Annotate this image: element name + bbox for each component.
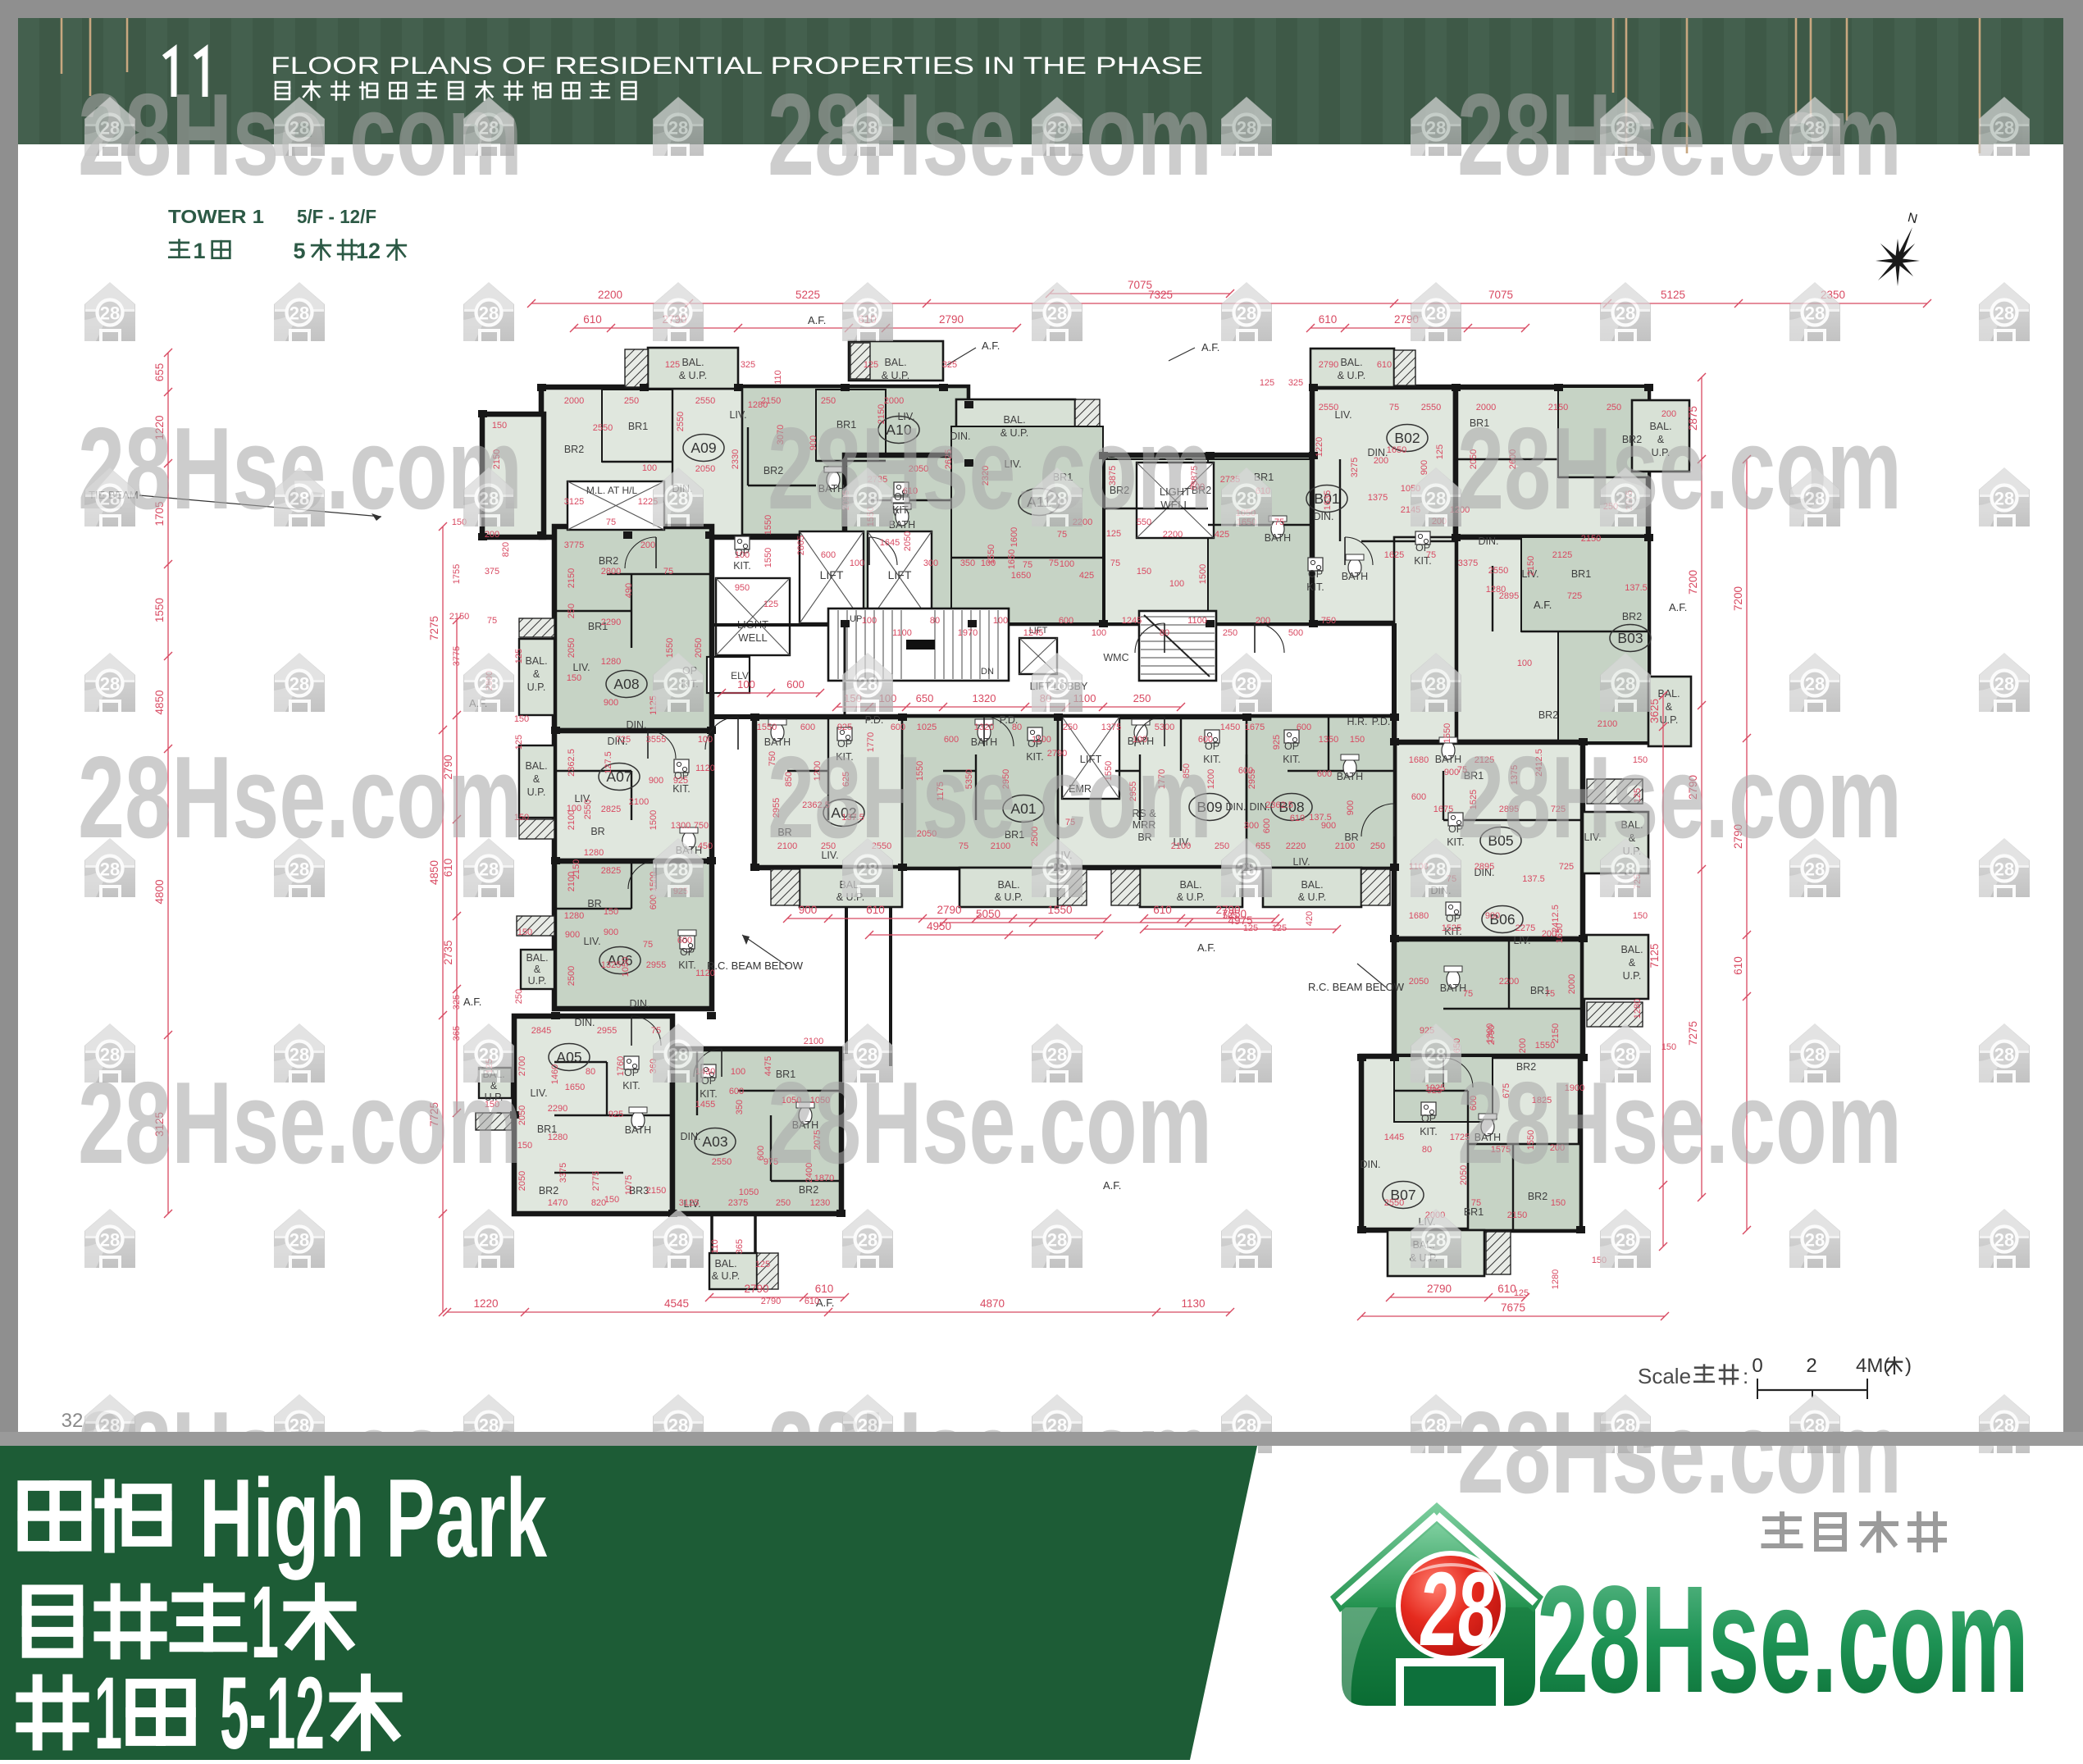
svg-text:150: 150 [567,673,581,683]
svg-text:2790: 2790 [937,904,961,916]
svg-text:1075: 1075 [624,1175,634,1195]
svg-text:OP: OP [680,946,695,958]
svg-text:2050: 2050 [694,638,704,658]
svg-text:2050: 2050 [903,531,913,551]
svg-text:75: 75 [643,940,653,950]
svg-text:110: 110 [710,1239,720,1254]
svg-text:600: 600 [786,678,804,691]
svg-text:1550: 1550 [1443,723,1452,743]
svg-text:600: 600 [891,722,905,732]
svg-text:2200: 2200 [1499,977,1519,987]
svg-text:610: 610 [1153,904,1172,916]
svg-text:3775: 3775 [564,540,584,550]
svg-text:BATH: BATH [1342,571,1368,582]
svg-text:7200: 7200 [1732,586,1744,611]
svg-text:UP: UP [850,614,862,624]
svg-text:2000: 2000 [1567,974,1577,994]
svg-text:7125: 7125 [1648,943,1661,968]
svg-text:7275: 7275 [428,616,440,640]
svg-text:2790: 2790 [1319,360,1338,370]
svg-text:925: 925 [608,1110,623,1119]
svg-text:1625: 1625 [1384,550,1404,560]
svg-text:600: 600 [677,936,692,946]
svg-text:900: 900 [1321,821,1336,831]
svg-text:LIV.: LIV. [1292,856,1310,868]
svg-text:BR: BR [587,898,601,909]
svg-text:1025: 1025 [917,722,937,732]
svg-text:BAL.: BAL. [1620,944,1643,955]
svg-text:DIN.: DIN. [575,1017,595,1028]
svg-text:100: 100 [731,1067,745,1077]
svg-text:1550: 1550 [1535,1041,1555,1051]
svg-text:DIN.: DIN. [1361,1159,1381,1170]
svg-text:75: 75 [1389,403,1399,413]
svg-text:2050: 2050 [1409,977,1429,987]
svg-text:28Hse.com: 28Hse.com [768,403,1212,534]
svg-text:7675: 7675 [1501,1301,1525,1314]
svg-text:BR2: BR2 [1538,709,1558,721]
svg-text:725: 725 [1567,591,1582,601]
svg-text:& U.P.: & U.P. [712,1270,741,1282]
svg-text:A08: A08 [613,676,639,692]
svg-text:1550: 1550 [665,638,675,658]
svg-text:A.F.: A.F. [1669,601,1687,613]
svg-text:BAL.: BAL. [1340,357,1362,368]
svg-text:OP: OP [1446,913,1461,924]
svg-text:420: 420 [1305,911,1315,926]
svg-text:100: 100 [1169,579,1184,589]
svg-text:2790: 2790 [761,1297,781,1306]
svg-text:2735: 2735 [442,940,454,964]
svg-text:137.5: 137.5 [1625,583,1648,593]
svg-text:U.P.: U.P. [528,975,547,987]
svg-text:125: 125 [864,360,878,370]
svg-text:BR1: BR1 [1571,568,1591,580]
svg-text:2150: 2150 [1507,1210,1527,1220]
svg-text:BATH: BATH [1337,771,1363,782]
svg-text:2275: 2275 [1516,923,1535,933]
svg-text:1470: 1470 [548,1198,567,1208]
svg-text:&: & [533,668,540,680]
svg-text:KIT.: KIT. [733,560,751,572]
svg-text:1675: 1675 [1433,805,1453,814]
svg-text:1680: 1680 [1409,911,1429,921]
svg-text:750: 750 [694,821,709,831]
svg-text:7075: 7075 [1128,279,1152,291]
svg-text:1320: 1320 [973,692,996,704]
svg-text:100: 100 [735,550,750,560]
svg-text:900: 900 [649,776,663,786]
svg-text:100: 100 [1517,659,1532,668]
svg-text:100: 100 [1092,628,1106,638]
svg-text:A03: A03 [702,1133,727,1150]
svg-text:DIN.: DIN. [627,719,647,731]
svg-text:100: 100 [862,616,877,626]
svg-text:2362.5: 2362.5 [567,749,577,777]
svg-text:A05: A05 [556,1049,581,1065]
svg-text:75: 75 [1545,989,1555,999]
svg-text:A.F.: A.F. [1534,599,1552,611]
svg-text:BR2: BR2 [1622,611,1642,622]
svg-text:2550: 2550 [1421,403,1441,413]
svg-text:75: 75 [663,567,673,577]
svg-text:150: 150 [1661,1042,1676,1052]
svg-text:125: 125 [665,360,680,370]
svg-text:BR1: BR1 [1464,1206,1484,1218]
svg-text:A.F.: A.F. [808,314,826,326]
svg-text:LIV.: LIV. [530,1087,547,1099]
svg-text:A09: A09 [691,440,716,456]
svg-text:610: 610 [866,904,885,916]
svg-text:DIN.: DIN. [1479,536,1499,547]
svg-text:925: 925 [1427,1086,1442,1096]
svg-text:75: 75 [1023,560,1032,570]
svg-text:KIT.: KIT. [1306,581,1324,593]
svg-text:2955: 2955 [597,1026,617,1036]
svg-text:900: 900 [565,930,580,940]
svg-text:2100: 2100 [804,1037,823,1046]
svg-text:125: 125 [755,1260,770,1269]
svg-text:505: 505 [1223,911,1237,921]
svg-text:250: 250 [1215,841,1229,851]
svg-text:725: 725 [1559,862,1574,872]
svg-text:80: 80 [1160,628,1169,638]
svg-text:450: 450 [698,841,713,851]
svg-text:610: 610 [1290,814,1305,823]
svg-text:150: 150 [514,714,529,724]
svg-text:BR: BR [590,826,604,837]
svg-text:1100: 1100 [1187,616,1207,626]
svg-text:925: 925 [673,776,688,786]
svg-text:1970: 1970 [958,628,978,638]
svg-text:2825: 2825 [601,805,621,814]
svg-text:1280: 1280 [748,400,768,410]
svg-text:3125: 3125 [679,1198,699,1208]
svg-text:2000: 2000 [564,396,584,406]
svg-text:2330: 2330 [731,449,741,469]
svg-text:725: 725 [616,735,631,745]
svg-text:LIV.: LIV. [583,936,600,947]
svg-text:150: 150 [1633,911,1648,921]
svg-text:75: 75 [1426,550,1436,560]
svg-text:1050: 1050 [739,1187,759,1197]
svg-text:75: 75 [1463,989,1473,999]
svg-text:610: 610 [1377,360,1392,370]
svg-text:): ) [1905,1355,1912,1377]
svg-text:1550: 1550 [987,545,996,564]
svg-text:1280: 1280 [1633,999,1643,1019]
svg-text:OP: OP [1421,1113,1436,1124]
svg-text:250: 250 [1133,692,1151,704]
svg-text:900: 900 [1420,460,1429,475]
svg-text:1375: 1375 [1368,493,1388,503]
svg-text:2150: 2150 [572,859,581,879]
svg-text:75: 75 [1110,558,1120,568]
svg-text:110: 110 [773,370,783,385]
svg-text:250: 250 [1063,722,1078,732]
svg-text:LIV.: LIV. [729,409,746,421]
svg-text:900: 900 [604,698,618,708]
svg-text:28Hse.com: 28Hse.com [768,70,1212,200]
svg-text:BR2: BR2 [1528,1191,1547,1202]
svg-text:&: & [1666,701,1673,713]
svg-text:125: 125 [514,649,524,663]
svg-text:1230: 1230 [810,1198,830,1208]
svg-text:3375: 3375 [1458,558,1478,568]
svg-text:5300: 5300 [1155,722,1174,732]
svg-text:2845: 2845 [531,1026,551,1036]
svg-text:100: 100 [642,463,657,473]
svg-text:2790: 2790 [1487,1025,1497,1045]
svg-text:600: 600 [1059,616,1073,626]
svg-text:OP: OP [1284,741,1299,752]
svg-text:BAL.: BAL. [1179,879,1201,891]
svg-text:4850: 4850 [428,860,440,885]
svg-text:BR2: BR2 [539,1185,558,1197]
svg-text:125: 125 [763,599,778,609]
svg-text:BR1: BR1 [628,421,648,432]
svg-text:610: 610 [1732,956,1744,975]
svg-text:A.F.: A.F. [1197,941,1215,954]
svg-text:2550: 2550 [712,1157,732,1167]
svg-text:1280: 1280 [564,911,584,921]
svg-text:2150: 2150 [1526,556,1536,576]
svg-text:200: 200 [1518,1038,1528,1053]
svg-text:High Park: High Park [199,1456,547,1580]
svg-text:200: 200 [1374,456,1388,466]
svg-text:BAL.: BAL. [1301,879,1323,891]
svg-text:2100: 2100 [629,797,649,807]
svg-text:1375: 1375 [1101,722,1121,732]
svg-text:1280: 1280 [548,1133,567,1142]
svg-text:150: 150 [604,907,618,917]
svg-text:2550: 2550 [695,396,715,406]
svg-text:125: 125 [1272,923,1287,933]
svg-text:A.F.: A.F. [463,996,481,1008]
svg-text:2050: 2050 [567,638,577,658]
svg-text:12: 12 [356,239,381,263]
svg-text:125: 125 [1435,444,1445,459]
svg-text:WELL: WELL [738,631,767,644]
svg-text:100: 100 [737,678,755,691]
svg-text:490: 490 [624,583,634,598]
svg-text:A.F.: A.F. [1201,341,1219,353]
svg-text:950: 950 [735,583,750,593]
svg-text:500: 500 [1288,628,1303,638]
svg-text:300: 300 [923,558,938,568]
svg-text:3555: 3555 [646,735,666,745]
svg-text:600: 600 [1238,766,1253,776]
svg-text:U.P.: U.P. [1660,714,1679,726]
svg-text:2550: 2550 [676,412,686,431]
svg-text:A.F.: A.F. [982,340,1000,352]
svg-text:&: & [1629,957,1636,969]
svg-text:0: 0 [1752,1355,1762,1377]
svg-text:1550: 1550 [757,722,777,732]
svg-text:900: 900 [1346,800,1356,815]
svg-text:2800: 2800 [601,567,621,577]
svg-text:250: 250 [567,604,577,618]
svg-text:900: 900 [799,904,818,916]
svg-text:80: 80 [1422,1145,1432,1155]
svg-text:28: 28 [1416,1551,1500,1668]
svg-text:125: 125 [1514,1288,1529,1298]
svg-text:2790: 2790 [1427,1283,1452,1295]
svg-text:100: 100 [698,735,713,745]
svg-text:365: 365 [452,1026,462,1041]
svg-text:75: 75 [606,517,616,527]
svg-text:5-12: 5-12 [220,1657,325,1760]
svg-text:75: 75 [1274,517,1284,527]
svg-text:1245: 1245 [1122,616,1142,626]
svg-text:2362.5: 2362.5 [1265,800,1293,810]
svg-text:325: 325 [452,995,462,1010]
svg-text:1350: 1350 [1319,735,1338,745]
svg-text:3375: 3375 [558,1163,568,1183]
svg-text:2100: 2100 [1598,719,1617,729]
svg-text:2790: 2790 [744,1283,768,1295]
svg-text:2150: 2150 [646,1186,666,1196]
svg-text:1675: 1675 [1245,722,1265,732]
svg-text:2150: 2150 [449,612,469,622]
svg-text:BAL.: BAL. [526,952,548,964]
svg-text:2895: 2895 [1475,862,1494,872]
svg-text:600: 600 [1297,722,1311,732]
svg-text:2865: 2865 [796,536,806,555]
svg-text:150: 150 [1551,1198,1566,1208]
svg-text:250: 250 [1370,841,1385,851]
svg-text:1130: 1130 [1181,1297,1205,1310]
svg-text:7275: 7275 [1687,1021,1699,1046]
svg-text:3275: 3275 [1350,458,1360,477]
svg-text:LIFT: LIFT [820,568,844,581]
svg-text:150: 150 [517,928,532,937]
svg-text:600: 600 [729,1087,744,1096]
svg-text:200: 200 [1256,616,1270,626]
svg-text:2375: 2375 [728,1198,748,1208]
svg-text:3775: 3775 [452,646,462,666]
svg-text:1650: 1650 [1007,549,1017,569]
svg-text:BR2: BR2 [599,555,618,567]
svg-text:80: 80 [1012,722,1022,732]
svg-text:425: 425 [1079,571,1094,581]
svg-text:1550: 1550 [153,598,166,622]
svg-text:75: 75 [487,616,497,626]
svg-text:1500: 1500 [1198,564,1208,584]
svg-text:250: 250 [624,396,639,406]
svg-text:137.5: 137.5 [1522,874,1545,884]
svg-text:600: 600 [821,550,836,560]
svg-text:P.D.: P.D. [865,714,884,726]
svg-text:150: 150 [604,1195,619,1205]
svg-text:2955: 2955 [646,960,666,970]
svg-text:1280: 1280 [584,848,604,858]
svg-text:2550: 2550 [1384,1198,1404,1208]
svg-text:1100: 1100 [892,628,912,638]
svg-text:DIN.: DIN. [1314,511,1334,522]
svg-text:2150: 2150 [1581,534,1601,544]
svg-text:5/F - 12/F: 5/F - 12/F [297,206,376,227]
svg-text:325: 325 [1288,378,1303,388]
svg-text:3125: 3125 [564,497,584,507]
svg-text:300: 300 [1244,821,1259,831]
svg-text:2100: 2100 [1335,841,1355,851]
svg-text:610: 610 [1319,313,1338,326]
svg-text:BR2: BR2 [564,444,584,455]
svg-text:127.5: 127.5 [604,751,613,774]
svg-text:2290: 2290 [548,1104,567,1114]
svg-text:1220: 1220 [473,1297,498,1310]
svg-text:655: 655 [153,363,166,382]
svg-text:28Hse.com: 28Hse.com [768,732,1212,863]
svg-text:250: 250 [1223,628,1237,638]
svg-text:610: 610 [804,1297,819,1306]
svg-text:5225: 5225 [795,289,820,301]
svg-text:600: 600 [1317,769,1332,779]
svg-text:2550: 2550 [1319,403,1338,413]
svg-text:1650: 1650 [565,1083,585,1092]
svg-text:28Hse.com: 28Hse.com [1457,732,1902,863]
svg-text:DN: DN [981,667,994,677]
svg-text:2050: 2050 [695,464,715,474]
svg-text:2150: 2150 [567,568,577,588]
svg-text:1325: 1325 [601,960,621,970]
svg-text:4M(: 4M( [1856,1355,1889,1377]
svg-text:80: 80 [930,616,940,626]
svg-text:LIV.: LIV. [1513,935,1530,946]
svg-text:1635: 1635 [1323,490,1333,510]
svg-text:DIN.: DIN. [681,1131,701,1142]
svg-text:325: 325 [942,360,957,370]
svg-text:7075: 7075 [1488,289,1513,301]
svg-text:2790: 2790 [939,313,964,326]
svg-text:365: 365 [735,1239,745,1254]
svg-text:1445: 1445 [1384,1133,1404,1142]
svg-text:4850: 4850 [153,690,166,714]
svg-text:P.D.: P.D. [1372,716,1391,727]
svg-text:M.L. AT H/L: M.L. AT H/L [586,485,638,496]
svg-text:2550: 2550 [583,800,593,819]
svg-text:350: 350 [735,1100,745,1114]
svg-text:LIV.: LIV. [572,662,590,673]
svg-text:KIT.: KIT. [678,959,696,971]
svg-text:1755: 1755 [452,564,462,584]
svg-text:1645: 1645 [880,538,900,548]
svg-text:1120: 1120 [695,763,715,773]
svg-text:820: 820 [501,542,511,557]
svg-text:R.C. BEAM BELOW: R.C. BEAM BELOW [707,959,804,972]
svg-text:BATH: BATH [1265,532,1291,544]
svg-text:H.R.: H.R. [1347,716,1368,727]
svg-text:1280: 1280 [1551,1269,1561,1289]
svg-text:U.P.: U.P. [1623,970,1642,982]
svg-text:75: 75 [1049,558,1059,568]
svg-text:1220: 1220 [1315,437,1324,457]
svg-text:80: 80 [586,1067,595,1077]
svg-text:& U.P.: & U.P. [679,370,708,381]
svg-text:350: 350 [960,558,975,568]
svg-text:1050: 1050 [621,957,631,977]
svg-text:BATH: BATH [625,1124,651,1136]
svg-text:1525: 1525 [1442,923,1461,933]
svg-text:1680: 1680 [1409,755,1429,765]
svg-text:1: 1 [193,239,205,263]
svg-text:BAL.: BAL. [714,1258,736,1269]
svg-text:&: & [533,773,540,785]
svg-text:KIT.: KIT. [1420,1126,1438,1137]
svg-text:7200: 7200 [1687,570,1699,595]
svg-text:100: 100 [850,558,864,568]
